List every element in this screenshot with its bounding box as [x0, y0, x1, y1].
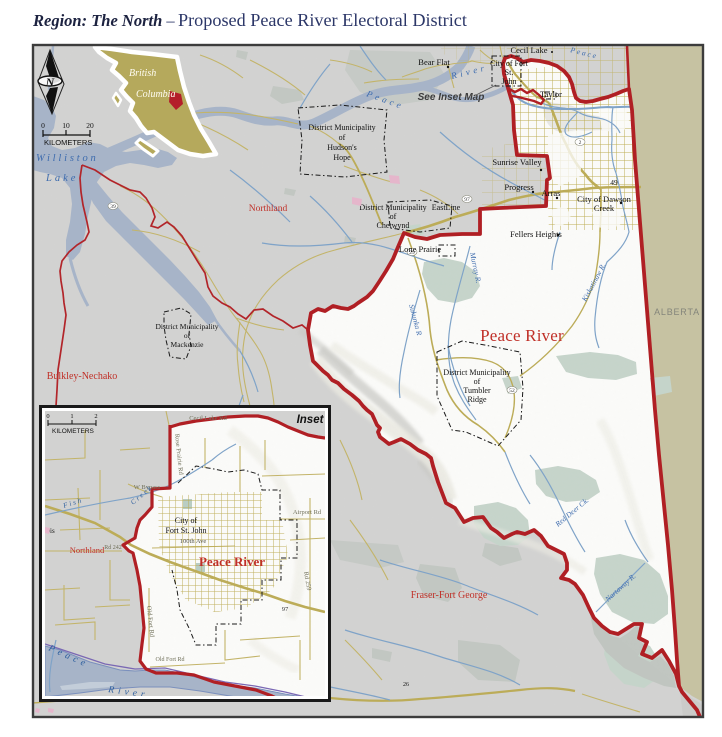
svg-text:Ridge: Ridge: [467, 395, 487, 404]
svg-text:Cecil Lake Rd: Cecil Lake Rd: [189, 415, 227, 422]
svg-text:District Municipality: District Municipality: [359, 203, 426, 212]
svg-text:Tumbler: Tumbler: [463, 386, 491, 395]
svg-text:Arras: Arras: [542, 188, 561, 198]
svg-text:Peace River: Peace River: [199, 554, 265, 569]
svg-text:39: 39: [110, 204, 116, 210]
svg-text:Williston: Williston: [36, 153, 99, 164]
svg-text:Lone Prairie: Lone Prairie: [399, 244, 441, 254]
svg-text:of: of: [474, 377, 481, 386]
svg-text:Bear Flat: Bear Flat: [418, 57, 450, 67]
svg-text:Old Fort Rd: Old Fort Rd: [155, 657, 184, 663]
svg-text:Cecil Lake: Cecil Lake: [510, 45, 547, 55]
svg-text:Region: The North –: Region: The North –: [32, 11, 175, 30]
svg-text:52: 52: [509, 388, 515, 394]
svg-text:0: 0: [46, 413, 49, 420]
svg-text:Inset: Inset: [297, 414, 325, 426]
svg-text:Bulkley-Nechako: Bulkley-Nechako: [47, 371, 118, 382]
svg-text:Columbia: Columbia: [136, 89, 175, 100]
svg-text:Progress: Progress: [504, 182, 533, 192]
svg-text:Hope: Hope: [333, 153, 351, 162]
svg-text:26: 26: [403, 682, 409, 688]
svg-text:British: British: [129, 68, 156, 79]
svg-text:Mackenzie: Mackenzie: [171, 340, 205, 349]
svg-text:Northland: Northland: [249, 204, 288, 214]
svg-text:Northland: Northland: [70, 545, 105, 555]
svg-text:Proposed Peace River Electoral: Proposed Peace River Electoral District: [178, 10, 467, 30]
svg-text:KILOMETERS: KILOMETERS: [44, 138, 92, 147]
svg-text:Taylor: Taylor: [540, 89, 562, 99]
svg-text:2: 2: [579, 140, 582, 146]
svg-text:10: 10: [62, 121, 70, 130]
svg-text:Lake: Lake: [45, 173, 78, 184]
svg-text:District Municipality: District Municipality: [443, 368, 510, 377]
svg-text:Rd 242: Rd 242: [104, 545, 122, 551]
svg-text:Airport Rd: Airport Rd: [293, 509, 322, 516]
svg-text:Peace River: Peace River: [480, 326, 564, 345]
svg-text:of: of: [390, 212, 397, 221]
svg-text:EastLine: EastLine: [432, 203, 461, 212]
svg-text:97: 97: [282, 606, 289, 613]
svg-text:District Municipality: District Municipality: [308, 123, 375, 132]
svg-text:of: of: [339, 133, 346, 142]
svg-text:Fraser-Fort George: Fraser-Fort George: [411, 590, 488, 601]
svg-text:Chetwynd: Chetwynd: [377, 221, 410, 230]
svg-text:See Inset Map: See Inset Map: [418, 92, 485, 103]
svg-text:N: N: [45, 75, 56, 89]
svg-text:Fellers Heights: Fellers Heights: [510, 229, 562, 239]
svg-text:0: 0: [41, 121, 45, 130]
svg-text:Creek: Creek: [594, 203, 615, 213]
svg-text:1: 1: [70, 413, 73, 420]
svg-text:2: 2: [94, 413, 97, 420]
svg-text:St.: St.: [505, 68, 514, 77]
svg-text:District Municipality: District Municipality: [155, 322, 218, 331]
svg-text:ALBERTA: ALBERTA: [654, 307, 700, 317]
svg-text:City of Fort: City of Fort: [490, 59, 529, 68]
svg-text:Fort St. John: Fort St. John: [165, 526, 206, 535]
svg-text:97: 97: [464, 197, 470, 203]
svg-text:100th Ave: 100th Ave: [180, 538, 207, 545]
svg-text:49: 49: [610, 178, 618, 187]
svg-text:20: 20: [86, 121, 94, 130]
svg-text:John: John: [501, 77, 516, 86]
svg-text:KILOMETERS: KILOMETERS: [52, 428, 95, 435]
svg-text:of: of: [184, 331, 191, 340]
svg-text:City of: City of: [175, 516, 198, 525]
svg-text:Hudson's: Hudson's: [327, 143, 356, 152]
svg-text:Sunrise Valley: Sunrise Valley: [492, 157, 542, 167]
